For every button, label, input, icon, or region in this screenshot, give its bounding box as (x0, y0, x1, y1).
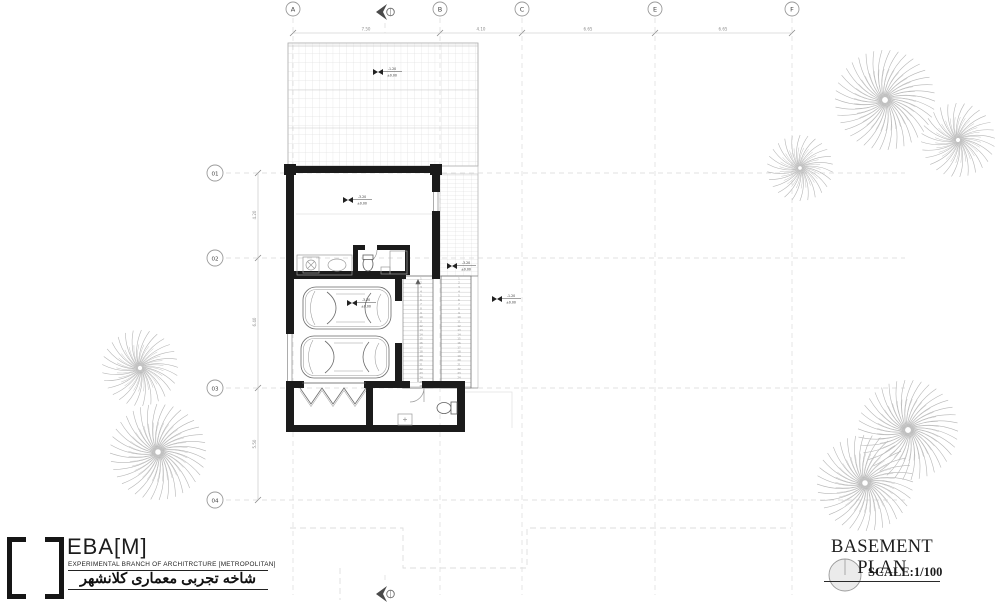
level-datum: ±0.00 (387, 74, 397, 78)
stair-tread-number: 21 (419, 363, 423, 367)
stair-tread-number: 19 (457, 354, 461, 358)
grid-column-label: F (790, 6, 794, 14)
stair-tread-number: 20 (419, 358, 423, 362)
stair-tread-number: 13 (419, 328, 423, 332)
level-datum: ±0.00 (506, 301, 516, 305)
scale-label: SCALE:1/100 (868, 565, 940, 580)
drawing-sheet: ABCEF010203047.504.106.656.654.206.405.5… (0, 0, 1000, 611)
stair-tread-number: 14 (457, 332, 461, 336)
dimension-label: 5.50 (252, 439, 257, 448)
courtyard-paving (288, 43, 478, 166)
logo-persian-title: شاخه تجربی معماری کلانشهر (68, 570, 268, 590)
floor-plan-drawing: ABCEF010203047.504.106.656.654.206.405.5… (0, 0, 1000, 611)
logo-bracket-right-icon (45, 537, 64, 599)
stair-tread-number: 11 (457, 319, 461, 323)
garage-opening (288, 334, 293, 381)
stair-tread-number: 20 (457, 358, 461, 362)
tree (921, 103, 995, 177)
level-value: -3.20 (462, 261, 470, 265)
level-datum: ±0.00 (357, 202, 367, 206)
stair-tread-number: 16 (457, 341, 461, 345)
tree (835, 50, 935, 150)
car-top-view (303, 287, 391, 329)
level-marker: -1.20±0.00 (492, 294, 521, 305)
stair-tread-number: 15 (457, 337, 461, 341)
dimension-label: 6.65 (719, 27, 728, 32)
level-datum: ±0.00 (361, 305, 371, 309)
level-value: -1.20 (507, 294, 515, 298)
dimension-label: 6.65 (584, 27, 593, 32)
stair-tread-number: 17 (457, 345, 461, 349)
logo-name: EBA[M] (67, 534, 148, 560)
grid-column-label: C (520, 6, 525, 14)
stair-tread-number: 13 (457, 328, 461, 332)
level-value: -1.20 (388, 67, 396, 71)
tree (817, 435, 913, 531)
level-marker: -3.20±0.00 (347, 298, 376, 309)
level-value: -3.20 (362, 298, 370, 302)
stair-tread-number: 22 (419, 367, 423, 371)
trees (102, 50, 995, 531)
stair-flight (441, 276, 471, 388)
stair-tread-number: 24 (457, 375, 461, 379)
north-arrow-icon (376, 4, 394, 20)
stair-tread-number: 19 (419, 354, 423, 358)
sink-basin (328, 259, 346, 271)
grid-row-label: 04 (211, 498, 219, 504)
stair-tread-number: 11 (419, 319, 423, 323)
stair-tread-number: 14 (419, 332, 423, 336)
grid-column-label: A (291, 6, 296, 14)
stair-tread-number: 24 (419, 375, 423, 379)
grid-column-label: B (438, 6, 442, 14)
door-swing (410, 388, 424, 402)
grid-column-label: E (653, 6, 657, 14)
wardrobe-zigzag (300, 388, 366, 404)
grid-row-label: 03 (211, 386, 219, 392)
grid-row-label: 01 (211, 171, 219, 177)
upper-floor-outline (290, 528, 791, 568)
car-top-view (301, 336, 389, 378)
dimension-label: 4.20 (252, 210, 257, 219)
level-marker: -3.20±0.00 (343, 195, 372, 206)
stair-tread-number: 21 (457, 363, 461, 367)
stair-tread-number: 17 (419, 345, 423, 349)
window (434, 192, 439, 211)
stair-tread-number: 16 (419, 341, 423, 345)
toilet (437, 403, 451, 414)
shower (390, 251, 407, 274)
stair-tread-number: 10 (457, 315, 461, 319)
stair-tread-number: 12 (419, 324, 423, 328)
stair-tread-number: 23 (457, 371, 461, 375)
stair-tread-number: 10 (419, 315, 423, 319)
logo-bracket-left-icon (7, 537, 26, 599)
level-value: -3.20 (358, 195, 366, 199)
tree (102, 330, 178, 406)
tree (110, 404, 206, 500)
stair-tread-number: 22 (457, 367, 461, 371)
parked-cars (301, 287, 391, 378)
stair-tread-number: 23 (419, 371, 423, 375)
stair-flight (403, 276, 433, 388)
logo-subtitle: EXPERIMENTAL BRANCH OF ARCHITRCTURE [MET… (68, 561, 276, 568)
dimension-label: 6.40 (252, 317, 257, 326)
stair-tread-number: 12 (457, 324, 461, 328)
dimension-label: 7.50 (362, 27, 371, 32)
dimension-label: 4.10 (477, 27, 486, 32)
level-datum: ±0.00 (461, 268, 471, 272)
stair-tread-number: 15 (419, 337, 423, 341)
tree (767, 135, 833, 201)
stair-tread-number: 18 (419, 350, 423, 354)
grid-row-label: 02 (211, 256, 218, 262)
context-outline (290, 392, 791, 600)
north-arrow-icon (376, 586, 394, 602)
stair-tread-number: 18 (457, 350, 461, 354)
